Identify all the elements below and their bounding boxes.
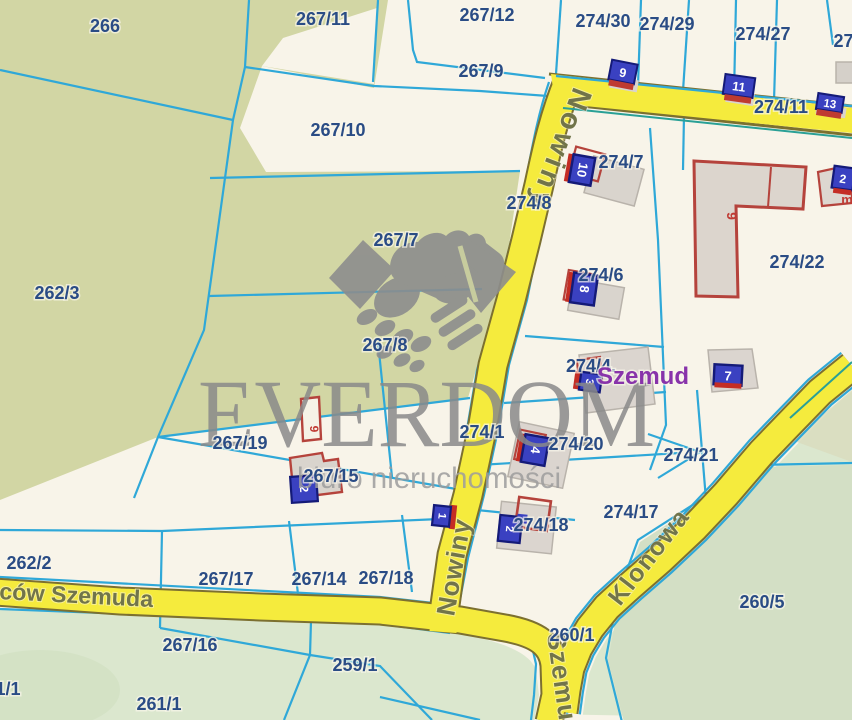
svg-text:274/18: 274/18 bbox=[513, 515, 568, 535]
svg-text:274/20: 274/20 bbox=[548, 434, 603, 454]
svg-text:274/29: 274/29 bbox=[639, 14, 694, 34]
svg-text:274/25: 274/25 bbox=[833, 31, 852, 51]
svg-text:267/15: 267/15 bbox=[303, 466, 358, 486]
svg-text:274/17: 274/17 bbox=[603, 502, 658, 522]
svg-text:274/7: 274/7 bbox=[598, 152, 643, 172]
svg-text:267/7: 267/7 bbox=[373, 230, 418, 250]
svg-text:267/9: 267/9 bbox=[458, 61, 503, 81]
svg-text:274/1: 274/1 bbox=[459, 422, 504, 442]
svg-text:11: 11 bbox=[731, 79, 746, 95]
svg-text:267/14: 267/14 bbox=[291, 569, 346, 589]
svg-text:267/17: 267/17 bbox=[198, 569, 253, 589]
svg-text:7: 7 bbox=[724, 368, 732, 383]
svg-text:260/5: 260/5 bbox=[739, 592, 784, 612]
svg-text:266: 266 bbox=[90, 16, 120, 36]
svg-text:1: 1 bbox=[435, 512, 448, 519]
svg-text:267/11: 267/11 bbox=[296, 9, 350, 29]
svg-text:10: 10 bbox=[574, 162, 591, 179]
svg-text:267/16: 267/16 bbox=[162, 635, 217, 655]
svg-text:274/6: 274/6 bbox=[578, 265, 623, 285]
svg-text:Szemud: Szemud bbox=[597, 363, 689, 390]
svg-text:274/8: 274/8 bbox=[506, 193, 551, 213]
svg-text:267/12: 267/12 bbox=[459, 5, 514, 25]
svg-text:274/11: 274/11 bbox=[754, 97, 808, 117]
svg-text:267/18: 267/18 bbox=[358, 568, 413, 588]
svg-text:262/2: 262/2 bbox=[6, 553, 51, 573]
svg-text:274/27: 274/27 bbox=[735, 24, 790, 44]
svg-text:274/22: 274/22 bbox=[769, 252, 824, 272]
svg-text:267/10: 267/10 bbox=[310, 120, 365, 140]
svg-text:259/1: 259/1 bbox=[332, 655, 377, 675]
svg-text:262/3: 262/3 bbox=[34, 283, 79, 303]
svg-text:274/30: 274/30 bbox=[575, 11, 630, 31]
svg-text:267/19: 267/19 bbox=[212, 433, 267, 453]
svg-text:274/21: 274/21 bbox=[663, 445, 718, 465]
svg-text:267/8: 267/8 bbox=[362, 335, 407, 355]
svg-text:261/1: 261/1 bbox=[136, 694, 181, 714]
svg-text:261/1: 261/1 bbox=[0, 679, 21, 699]
svg-text:260/1: 260/1 bbox=[549, 625, 594, 645]
svg-text:9: 9 bbox=[724, 212, 740, 220]
svg-text:13: 13 bbox=[823, 98, 838, 112]
